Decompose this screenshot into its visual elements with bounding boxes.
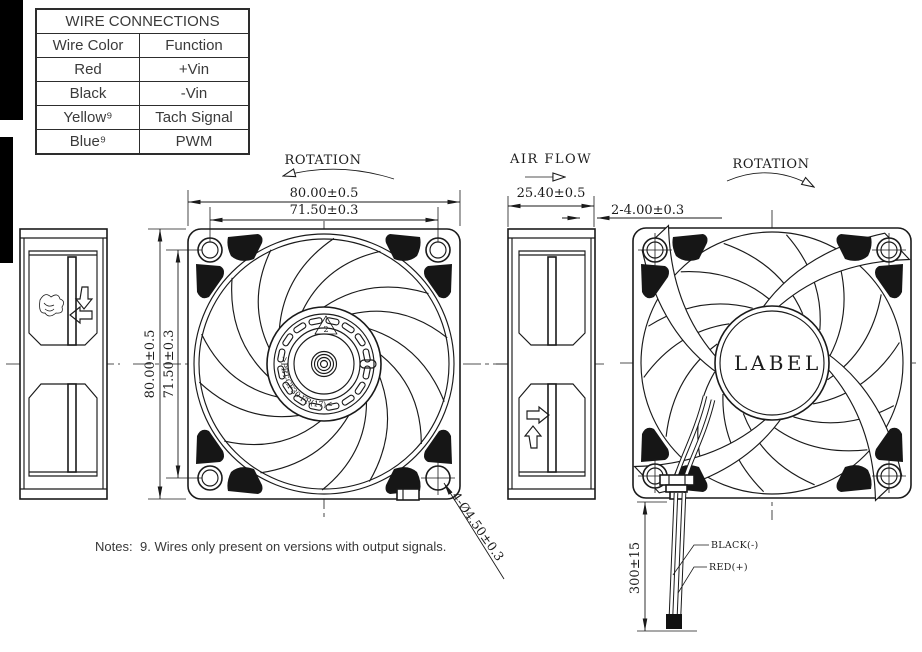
front-height-outer-dim: 80.00±0.5 [144, 314, 158, 414]
front-width-inner-dim: 71.50±0.3 [274, 204, 374, 218]
wire-tip [666, 614, 682, 629]
drawing-linework: 2 >PBT-GF30-FR(17)< [0, 0, 922, 652]
hub: 2 >PBT-GF30-FR(17)< [267, 307, 381, 421]
recycle-code: 2 [323, 325, 328, 334]
hub-label: LABEL [734, 351, 810, 375]
black-wire-label: BLACK(-) [711, 540, 759, 551]
lead-length-dim: 300±15 [629, 533, 643, 603]
rear-rotation-label: ROTATION [729, 158, 813, 172]
front-rotation-label: ROTATION [280, 154, 366, 168]
strain-relief [660, 475, 694, 485]
notes-prefix: Notes: [95, 539, 133, 554]
drawing-sheet: WIRE CONNECTIONS Wire Color Function Red… [0, 0, 922, 652]
rear-view [620, 173, 917, 631]
front-width-outer-dim: 80.00±0.5 [274, 187, 374, 201]
airflow-label: AIR FLOW [509, 153, 593, 167]
left-side-view [6, 229, 120, 499]
front-height-inner-dim: 71.50±0.3 [163, 314, 177, 414]
frame-tab [397, 489, 419, 500]
depth-dim: 25.40±0.5 [504, 187, 598, 201]
side-dimensions [508, 177, 722, 227]
front-view: 2 >PBT-GF30-FR(17)< [133, 169, 515, 579]
red-wire-label: RED(+) [709, 562, 748, 573]
flange-thickness-dim: 2-4.00±0.3 [611, 204, 684, 218]
notes-text: 9. Wires only present on versions with o… [140, 539, 446, 554]
